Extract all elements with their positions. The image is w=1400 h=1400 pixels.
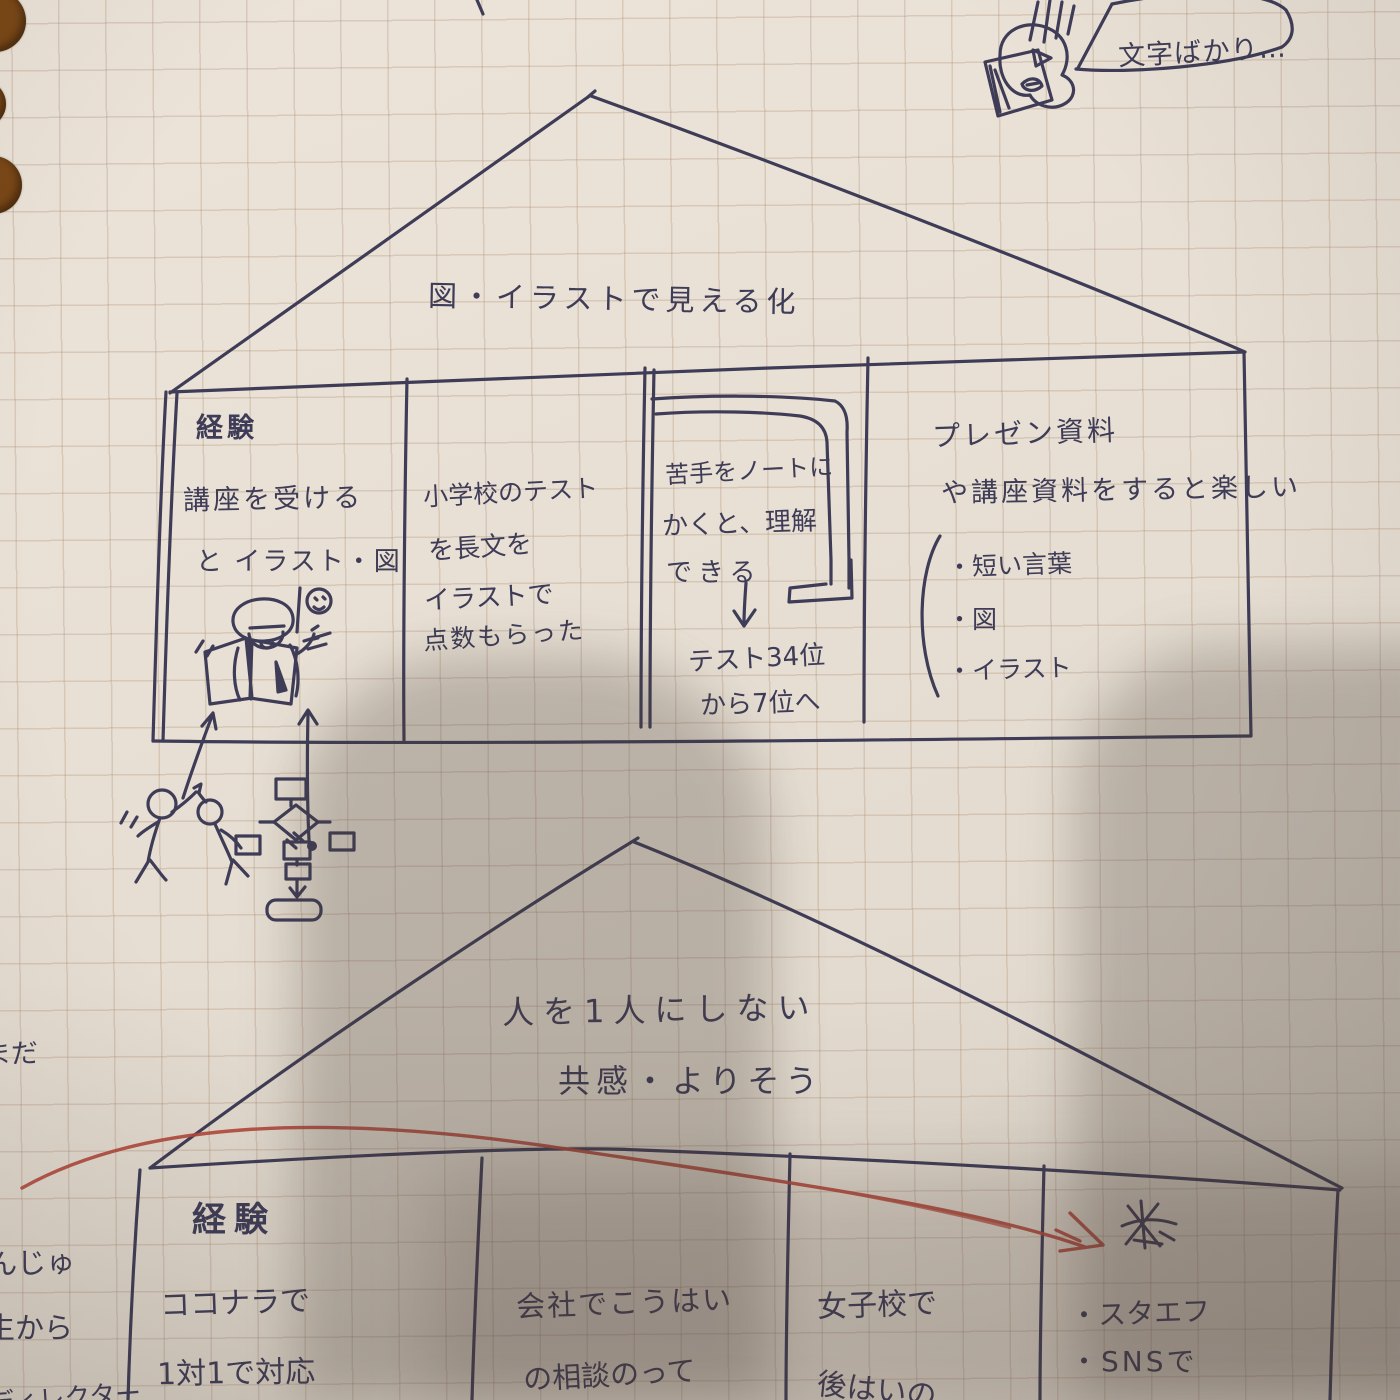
upper-room4-bullet: ・イラスト xyxy=(946,648,1072,688)
margin-fragment: 生から xyxy=(0,1305,73,1347)
scribbled-kanji-doodle xyxy=(1122,1201,1176,1248)
lower-room1-line: ココナラで xyxy=(159,1275,310,1324)
notebook-photo: 文字ばかり… 図・イラストで見える化 経験 講座を受ける と イラスト・図 小学… xyxy=(0,0,1400,1400)
red-arrow-line xyxy=(22,1127,1103,1251)
room-divider xyxy=(1040,1166,1044,1400)
upper-roof-title: 図・イラストで見える化 xyxy=(428,273,801,321)
margin-fragment: まだ xyxy=(0,1031,39,1072)
upper-room3-result: から7位へ xyxy=(699,681,821,722)
worried-face-icon xyxy=(985,0,1074,116)
stray-mark xyxy=(477,0,483,14)
room-divider xyxy=(786,1154,790,1400)
upper-room4-bullet: ・短い言葉 xyxy=(946,544,1072,584)
margin-fragment: んじゅ xyxy=(0,1238,76,1283)
room-divider xyxy=(472,1158,482,1400)
lower-room4-bullet: ・SNSで xyxy=(1070,1340,1198,1380)
flowchart-icon xyxy=(236,779,354,920)
down-arrow-icon xyxy=(734,583,755,626)
upper-room3-line: できる xyxy=(666,552,761,589)
bracket-paren xyxy=(922,536,940,696)
lower-room4-bullet: ・スタエフ xyxy=(1069,1290,1210,1335)
upper-room1-line: 講座を受ける xyxy=(183,475,364,517)
room-divider xyxy=(864,358,868,722)
room-divider xyxy=(404,379,407,740)
upper-room1-line: と イラスト・図 xyxy=(196,541,402,578)
lower-room2-line: 会社でこうはい xyxy=(515,1276,733,1326)
upper-room3-line: かくと、理解 xyxy=(661,500,817,542)
upper-room1-heading: 経験 xyxy=(196,406,258,445)
room-divider xyxy=(641,368,654,727)
upper-room4-line: プレゼン資料 xyxy=(931,409,1118,455)
upper-room3-result: テスト34位 xyxy=(687,634,826,678)
lower-roof-line: 人を1人にしない xyxy=(502,982,819,1034)
upper-room4-bullet: ・図 xyxy=(947,600,997,636)
lower-room1-heading: 経験 xyxy=(192,1192,276,1241)
upper-room4-line: や講座資料をすると楽しい xyxy=(941,465,1302,510)
lower-room3-line: 女子校で xyxy=(816,1278,937,1326)
upper-room2-line: イラストで xyxy=(423,574,554,618)
lower-room1-line: 1対1で対応 xyxy=(157,1347,316,1394)
upper-room2-line: を長文を xyxy=(427,523,533,567)
open-book-icon xyxy=(205,638,297,704)
lower-roof-line: 共感・よりそう xyxy=(558,1056,823,1102)
